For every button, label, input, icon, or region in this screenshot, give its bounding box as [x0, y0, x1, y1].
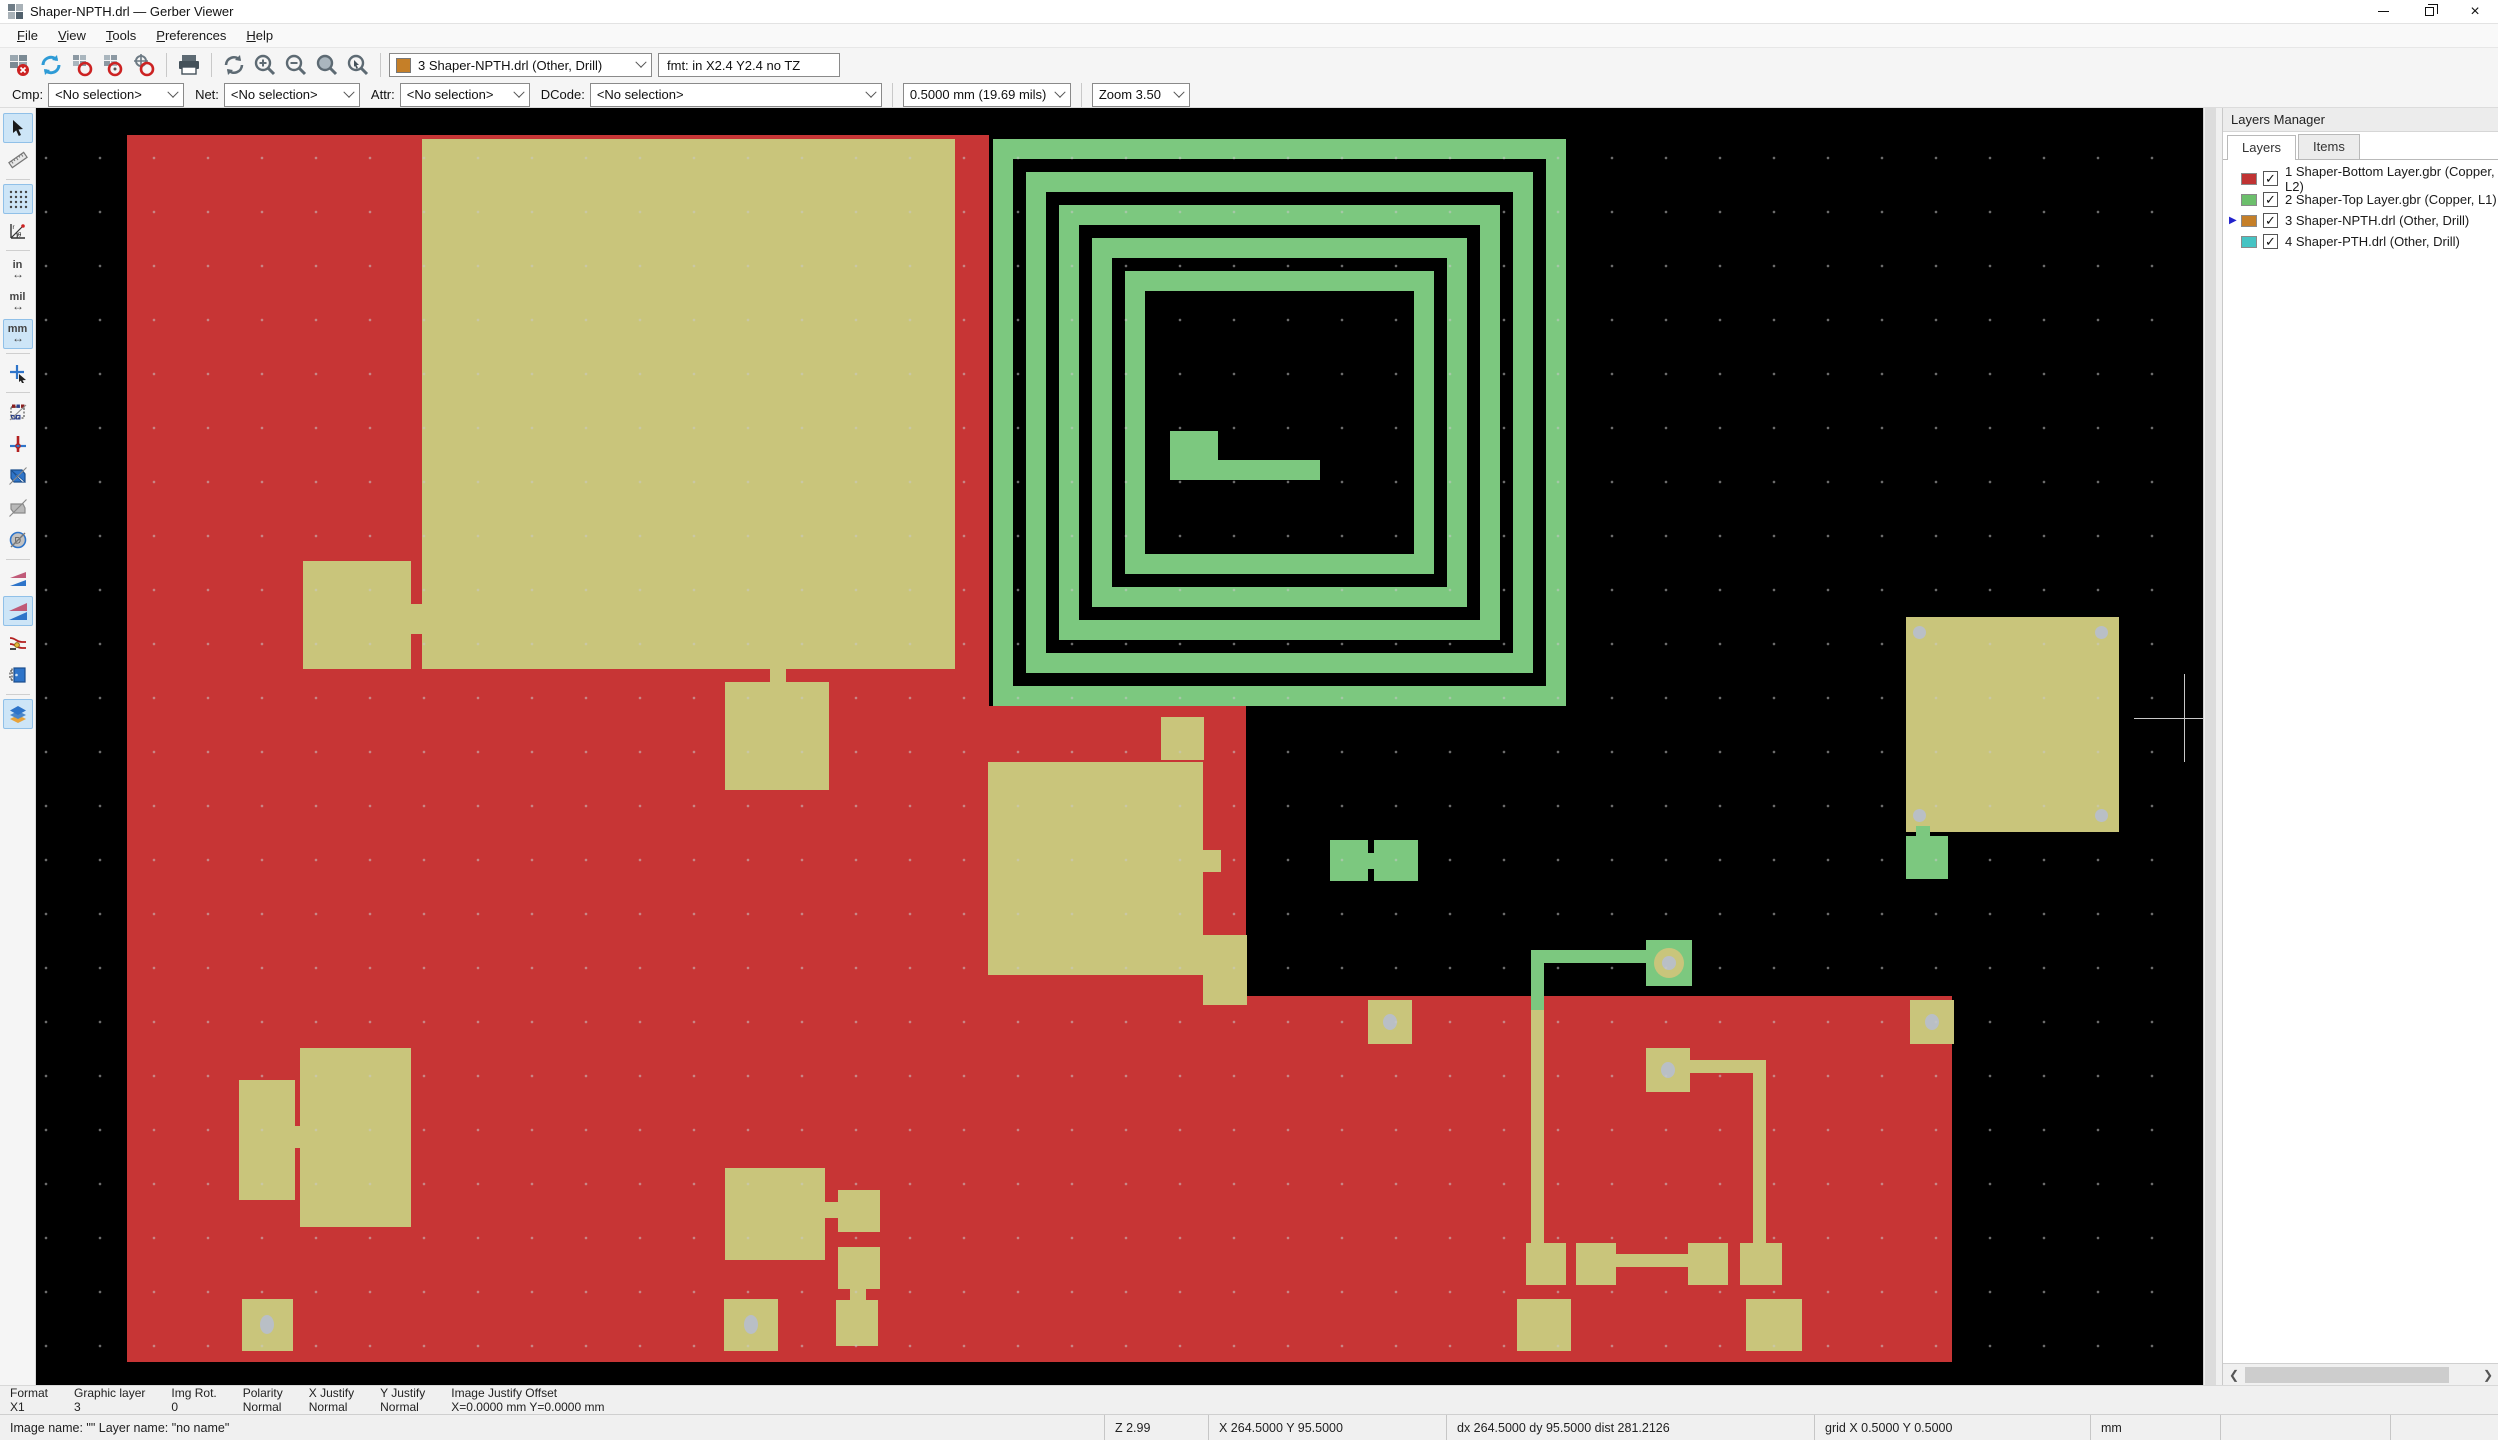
- toolbar-separator: [6, 694, 30, 695]
- ruler-icon: [8, 150, 28, 170]
- gerbview-window: { "window": { "title": "Shaper-NPTH.drl …: [0, 0, 2498, 1440]
- gerber-shape: [836, 1300, 878, 1346]
- gerber-shape: [988, 762, 1203, 975]
- layer-visibility-checkbox[interactable]: ✓: [2263, 171, 2278, 186]
- grid-size-select[interactable]: 0.5000 mm (19.69 mils): [903, 83, 1071, 107]
- scroll-right-arrow-icon[interactable]: ❯: [2477, 1368, 2498, 1382]
- attribute-select[interactable]: <No selection>: [400, 83, 530, 107]
- zoom-level-value: Zoom 3.50: [1099, 87, 1161, 102]
- selected-layer-marker-icon: ▶: [2229, 216, 2241, 226]
- restore-icon: [2425, 7, 2434, 16]
- layer-row[interactable]: ✓4 Shaper-PTH.drl (Other, Drill): [2223, 231, 2498, 252]
- crosshair-cursor-icon: [8, 363, 28, 383]
- crosshair-cursor: [2184, 674, 2185, 762]
- drill-hole: [2095, 809, 2108, 822]
- drill-hole: [1913, 809, 1926, 822]
- svg-text:r: r: [12, 225, 14, 231]
- sketch-polygons-button[interactable]: [3, 461, 33, 491]
- stack-mode-icon: [8, 601, 28, 621]
- scroll-left-arrow-icon[interactable]: ❮: [2223, 1368, 2245, 1382]
- net-select-value: <No selection>: [231, 87, 318, 102]
- close-button[interactable]: ×: [2452, 0, 2498, 23]
- panel-icon: [8, 665, 28, 685]
- units-mm-icon: mm↔: [8, 325, 28, 343]
- restore-button[interactable]: [2406, 0, 2452, 23]
- menu-file[interactable]: File: [8, 25, 47, 46]
- cursor-arrow-icon: [8, 118, 28, 138]
- minimize-icon: [2378, 11, 2389, 12]
- toolbar-separator: [166, 53, 167, 77]
- layers-manager-toggle-button[interactable]: [3, 699, 33, 729]
- attribute-select-value: <No selection>: [407, 87, 494, 102]
- chevron-down-icon: [1054, 86, 1065, 97]
- units-inch-icon: in↔: [12, 261, 23, 279]
- menu-help[interactable]: Help: [237, 25, 282, 46]
- layer-label: 1 Shaper-Bottom Layer.gbr (Copper, L2): [2285, 164, 2498, 194]
- layers-stack-icon: [8, 704, 28, 724]
- open-zip-archive-button[interactable]: [130, 51, 158, 79]
- gerber-shape: [1374, 840, 1418, 881]
- print-button[interactable]: [175, 51, 203, 79]
- toolbar-separator: [892, 83, 893, 107]
- dcodes-icon: D: [8, 530, 28, 550]
- status-zoom: Z 2.99: [1104, 1415, 1208, 1440]
- zoom-level-select[interactable]: Zoom 3.50: [1092, 83, 1190, 107]
- gerber-shape: [1537, 950, 1647, 963]
- layer-visibility-checkbox[interactable]: ✓: [2263, 234, 2278, 249]
- gerber-canvas[interactable]: [36, 108, 2216, 1385]
- tab-items[interactable]: Items: [2298, 134, 2360, 159]
- gerber-shape: [293, 1126, 303, 1148]
- drill-hole: [1662, 956, 1676, 970]
- polar-coords-icon: r θ: [8, 221, 28, 241]
- gerber-shape: [405, 604, 427, 634]
- title-bar: Shaper-NPTH.drl — Gerber Viewer ×: [0, 0, 2498, 24]
- net-select[interactable]: <No selection>: [224, 83, 360, 107]
- info-column: X Justify Normal: [309, 1386, 354, 1414]
- sketch-lines-button[interactable]: [3, 429, 33, 459]
- reload-layers-icon: [39, 53, 63, 77]
- units-mil-button[interactable]: mil↔: [3, 287, 33, 317]
- component-select-value: <No selection>: [55, 87, 142, 102]
- layer-color-swatch[interactable]: [2241, 194, 2257, 206]
- gerber-shape: [1906, 836, 1948, 879]
- grid-size-value: 0.5000 mm (19.69 mils): [910, 87, 1047, 102]
- gerber-shape: [1753, 1060, 1766, 1245]
- gerber-shape: [1170, 460, 1320, 480]
- status-names: Image name: "" Layer name: "no name": [0, 1415, 1104, 1440]
- active-layer-value: 3 Shaper-NPTH.drl (Other, Drill): [418, 58, 602, 73]
- drill-hole: [1913, 626, 1926, 639]
- canvas-vertical-scrollbar[interactable]: [2203, 108, 2216, 1385]
- sketch-polygons-icon: [8, 466, 28, 486]
- zoom-fit-icon: [315, 53, 339, 77]
- toolbar-separator: [6, 392, 30, 393]
- app-icon: [8, 4, 24, 20]
- gerber-shape: [1161, 717, 1204, 760]
- status-cursor-position: X 264.5000 Y 95.5000: [1208, 1415, 1446, 1440]
- cmp-label: Cmp:: [12, 87, 43, 102]
- gerber-shape: [1203, 935, 1247, 1005]
- gerber-shape: [1246, 996, 1952, 1362]
- show-dcodes-button[interactable]: D: [3, 525, 33, 555]
- zoom-selection-icon: [346, 53, 370, 77]
- window-title: Shaper-NPTH.drl — Gerber Viewer: [30, 4, 234, 19]
- chevron-down-icon: [635, 57, 646, 68]
- gerber-shape: [1906, 617, 2119, 832]
- menu-view[interactable]: View: [49, 25, 95, 46]
- menu-preferences[interactable]: Preferences: [147, 25, 235, 46]
- layer-color-swatch[interactable]: [2241, 215, 2257, 227]
- info-column: Polarity Normal: [243, 1386, 283, 1414]
- ghost-negative-objects-button[interactable]: [3, 493, 33, 523]
- chevron-down-icon: [343, 86, 354, 97]
- measure-tool-button[interactable]: [3, 145, 33, 175]
- chevron-down-icon: [167, 86, 178, 97]
- gerber-shape: [1203, 850, 1221, 872]
- chevron-down-icon: [513, 86, 524, 97]
- units-inch-button[interactable]: in↔: [3, 255, 33, 285]
- toolbar-separator: [6, 559, 30, 560]
- sketch-flashed-items-button[interactable]: [3, 397, 33, 427]
- toolbar-separator: [1081, 83, 1082, 107]
- crosshair-style-button[interactable]: [3, 358, 33, 388]
- gerber-shape: [838, 1247, 880, 1289]
- info-column: Y Justify Normal: [380, 1386, 425, 1414]
- layer-row[interactable]: ✓2 Shaper-Top Layer.gbr (Copper, L1): [2223, 189, 2498, 210]
- open-zip-icon: [132, 53, 156, 77]
- gerber-shape: [1740, 1243, 1782, 1285]
- drill-hole: [744, 1315, 758, 1334]
- drill-hole: [1925, 1014, 1939, 1030]
- negative-objects-icon: [8, 498, 28, 518]
- gerber-shape: [1526, 1243, 1566, 1285]
- net-label: Net:: [195, 87, 219, 102]
- toolbar-separator: [211, 53, 212, 77]
- gerber-shape: [1531, 950, 1544, 1012]
- chevron-down-icon: [865, 86, 876, 97]
- info-column: Graphic layer 3: [74, 1386, 145, 1414]
- clear-layers-icon: [8, 53, 32, 77]
- open-drill-icon: [101, 53, 125, 77]
- polar-coordinates-button[interactable]: r θ: [3, 216, 33, 246]
- net-tracks-icon: [8, 633, 28, 653]
- layer-visibility-checkbox[interactable]: ✓: [2263, 213, 2278, 228]
- gerber-shape: [239, 1080, 295, 1200]
- drill-hole: [1383, 1014, 1397, 1030]
- open-drill-file-button[interactable]: [99, 51, 127, 79]
- status-relative-position: dx 264.5000 dy 95.5000 dist 281.2126: [1446, 1415, 1814, 1440]
- status-units: mm: [2090, 1415, 2220, 1440]
- panel-hscroll-thumb[interactable]: [2245, 1367, 2449, 1383]
- close-icon: ×: [2470, 4, 2479, 20]
- gerber-shape: [1612, 1254, 1692, 1267]
- toolbar-separator: [6, 250, 30, 251]
- gerber-shape: [838, 1190, 880, 1232]
- menu-bar: FileViewToolsPreferencesHelp: [0, 24, 2498, 48]
- redraw-icon: [222, 53, 246, 77]
- spiral-coil-ring: [1125, 271, 1434, 574]
- gerber-shape: [770, 666, 786, 684]
- grid-visibility-button[interactable]: [3, 184, 33, 214]
- layer-label: 2 Shaper-Top Layer.gbr (Copper, L1): [2285, 192, 2497, 207]
- filter-toolbar: Cmp: <No selection> Net: <No selection> …: [0, 82, 2498, 108]
- stack-mode-button[interactable]: [3, 596, 33, 626]
- dcode-label: DCode:: [541, 87, 585, 102]
- panel-horizontal-scrollbar[interactable]: ❮ ❯: [2223, 1363, 2498, 1385]
- layer-color-swatch[interactable]: [2241, 236, 2257, 248]
- layers-manager-panel: Layers Manager LayersItems ✓1 Shaper-Bot…: [2222, 108, 2498, 1385]
- drill-hole: [2095, 626, 2108, 639]
- show-source-button[interactable]: [3, 660, 33, 690]
- zoom-in-button[interactable]: [251, 51, 279, 79]
- menu-tools[interactable]: Tools: [97, 25, 145, 46]
- zoom-fit-button[interactable]: [313, 51, 341, 79]
- zoom-out-button[interactable]: [282, 51, 310, 79]
- print-icon: [177, 53, 201, 77]
- status-grid: grid X 0.5000 Y 0.5000: [1814, 1415, 2090, 1440]
- main-toolbar: 3 Shaper-NPTH.drl (Other, Drill) fmt: in…: [0, 48, 2498, 82]
- active-layer-color-swatch: [396, 58, 411, 73]
- toolbar-separator: [6, 179, 30, 180]
- gerber-shape: [300, 1048, 411, 1227]
- grid-dots-icon: [8, 189, 28, 209]
- layer-color-swatch[interactable]: [2241, 173, 2257, 185]
- layers-manager-title: Layers Manager: [2223, 108, 2498, 132]
- component-select[interactable]: <No selection>: [48, 83, 184, 107]
- gerber-shape: [422, 139, 955, 669]
- dcode-select-value: <No selection>: [597, 87, 684, 102]
- gerber-shape: [1746, 1299, 1802, 1351]
- layer-row[interactable]: ▶✓3 Shaper-NPTH.drl (Other, Drill): [2223, 210, 2498, 231]
- diff-mode-button[interactable]: [3, 564, 33, 594]
- gerber-shape: [1517, 1299, 1571, 1351]
- diff-mode-icon: [8, 569, 28, 589]
- units-mil-icon: mil↔: [10, 293, 26, 311]
- status-spare-1: [2220, 1415, 2390, 1440]
- reload-all-layers-button[interactable]: [37, 51, 65, 79]
- clear-all-layers-button[interactable]: [6, 51, 34, 79]
- layer-label: 4 Shaper-PTH.drl (Other, Drill): [2285, 234, 2460, 249]
- active-layer-select[interactable]: 3 Shaper-NPTH.drl (Other, Drill): [389, 53, 652, 77]
- layer-row[interactable]: ✓1 Shaper-Bottom Layer.gbr (Copper, L2): [2223, 168, 2498, 189]
- sketch-pads-icon: [8, 402, 28, 422]
- panel-hscroll-track[interactable]: [2245, 1367, 2477, 1383]
- zoom-selection-button[interactable]: [344, 51, 372, 79]
- chevron-down-icon: [1173, 86, 1184, 97]
- zoom-in-icon: [253, 53, 277, 77]
- units-mm-button[interactable]: mm↔: [3, 319, 33, 349]
- toolbar-separator: [6, 353, 30, 354]
- gerber-shape: [1362, 853, 1378, 869]
- info-column: Format X1: [10, 1386, 48, 1414]
- drill-hole: [1661, 1062, 1675, 1078]
- options-toolbar: r θ in↔ mil↔ mm↔: [0, 108, 36, 1385]
- redraw-view-button[interactable]: [220, 51, 248, 79]
- gerber-shape: [1688, 1243, 1728, 1285]
- open-gerber-file-button[interactable]: [68, 51, 96, 79]
- layer-label: 3 Shaper-NPTH.drl (Other, Drill): [2285, 213, 2469, 228]
- select-tool-button[interactable]: [3, 113, 33, 143]
- info-column: Image Justify Offset X=0.0000 mm Y=0.000…: [451, 1386, 604, 1414]
- minimize-button[interactable]: [2360, 0, 2406, 23]
- canvas-vscroll-thumb[interactable]: [2205, 108, 2216, 1385]
- zoom-out-icon: [284, 53, 308, 77]
- image-info-band: Format X1Graphic layer 3Img Rot. 0Polari…: [0, 1385, 2498, 1414]
- gerber-shape: [1576, 1243, 1616, 1285]
- gerber-shape: [303, 561, 411, 669]
- dcode-select[interactable]: <No selection>: [590, 83, 882, 107]
- drill-hole: [260, 1315, 274, 1334]
- gerber-shape: [725, 1168, 825, 1260]
- gerber-shape: [725, 682, 829, 790]
- highlight-net-button[interactable]: [3, 628, 33, 658]
- status-bar: Image name: "" Layer name: "no name" Z 2…: [0, 1414, 2498, 1440]
- layer-visibility-checkbox[interactable]: ✓: [2263, 192, 2278, 207]
- open-gerber-icon: [70, 53, 94, 77]
- info-column: Img Rot. 0: [171, 1386, 216, 1414]
- sketch-lines-icon: [8, 434, 28, 454]
- gerber-shape: [1531, 1010, 1544, 1250]
- toolbar-separator: [380, 53, 381, 77]
- status-spare-2: [2390, 1415, 2498, 1440]
- tab-layers[interactable]: Layers: [2227, 135, 2296, 160]
- attr-label: Attr:: [371, 87, 395, 102]
- layers-manager-tabs: LayersItems: [2223, 132, 2498, 160]
- layer-list: ✓1 Shaper-Bottom Layer.gbr (Copper, L2)✓…: [2223, 160, 2498, 252]
- format-info-field: fmt: in X2.4 Y2.4 no TZ: [658, 53, 840, 77]
